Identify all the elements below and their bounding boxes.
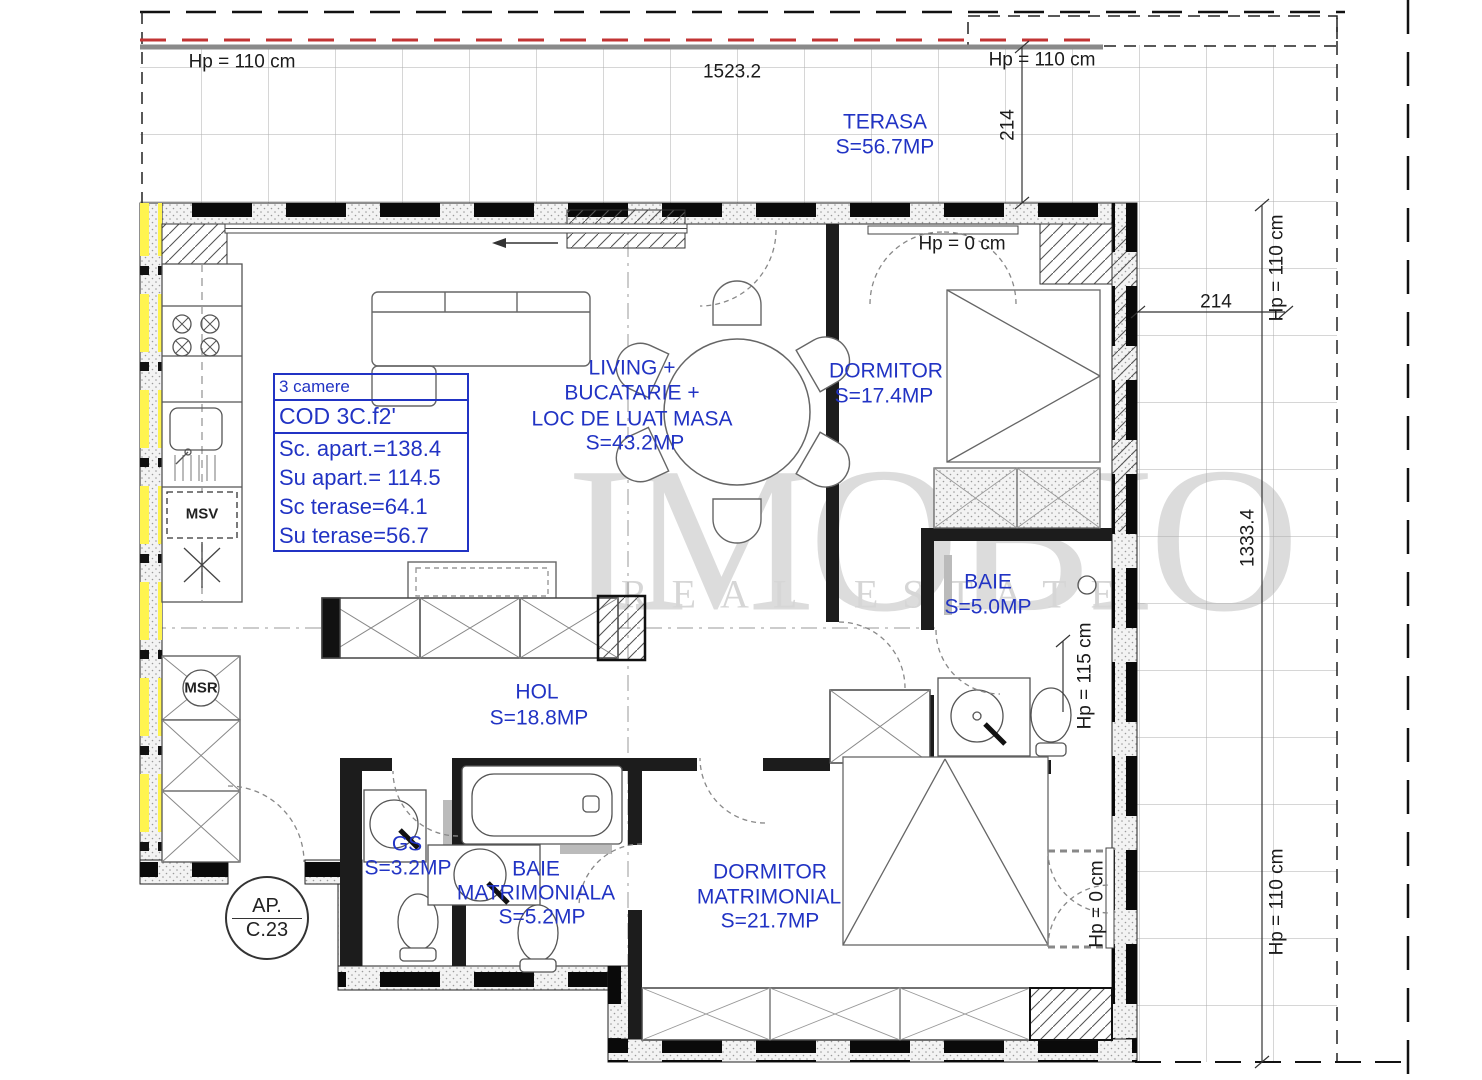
dim-1523: 1523.2 — [703, 63, 761, 82]
info-terrace-built: Sc terase=64.1 — [275, 492, 467, 521]
room-label-baie: BAIE — [964, 572, 1012, 593]
bed-dormitor — [934, 290, 1100, 528]
apartment-number-badge: AP. C.23 — [225, 876, 309, 960]
dim-hp110-right-upper: Hp = 110 cm — [1268, 215, 1287, 322]
badge-c23: C.23 — [232, 918, 302, 942]
dim-hp0-bottom: Hp = 0 cm — [1088, 860, 1107, 947]
room-area-baie: S=5.0MP — [945, 597, 1032, 618]
room-label-dorm-matr-2: MATRIMONIAL — [697, 887, 841, 908]
dim-214-right: 214 — [1200, 293, 1232, 312]
kitchen-counter — [162, 264, 242, 602]
hallway-wardrobe — [322, 596, 645, 660]
tv-cabinet — [408, 562, 556, 602]
room-label-baie-matr-1: BAIE — [512, 859, 560, 880]
floor-plan: IMOBIO REAL ESTATE — [0, 0, 1482, 1080]
dim-1333: 1333.4 — [1239, 509, 1258, 567]
closet-left — [162, 720, 240, 862]
room-label-terasa: TERASA — [843, 112, 927, 133]
room-area-hol: S=18.8MP — [490, 708, 589, 729]
room-label-living-3: LOC DE LUAT MASA — [531, 409, 732, 430]
dim-214-top: 214 — [999, 109, 1018, 141]
dim-hp110-top-left: Hp = 110 cm — [189, 53, 296, 72]
info-terrace-usable: Su terase=56.7 — [275, 521, 467, 550]
room-label-dorm-matr-1: DORMITOR — [713, 862, 827, 883]
msr-label: MSR — [184, 681, 217, 696]
north-arrow — [492, 238, 558, 248]
dim-hp0-dormitor: Hp = 0 cm — [918, 235, 1005, 254]
dim-hp110-top-right: Hp = 110 cm — [989, 51, 1096, 70]
info-built-area: Sc. apart.=138.4 — [275, 434, 467, 463]
info-rooms-count: 3 camere — [275, 375, 467, 401]
dim-hp115: Hp = 115 cm — [1076, 623, 1095, 730]
room-label-living-1: LIVING + — [589, 358, 676, 379]
badge-ap: AP. — [232, 895, 302, 918]
room-area-gs: S=3.2MP — [365, 858, 452, 879]
bathroom-baie — [938, 555, 1096, 756]
closet-hol — [830, 690, 930, 763]
wardrobe-bottom — [642, 988, 1112, 1040]
room-label-living-2: BUCATARIE + — [564, 383, 699, 404]
dim-hp110-right-lower: Hp = 110 cm — [1268, 849, 1287, 956]
room-area-baie-matr: S=5.2MP — [499, 907, 586, 928]
room-label-hol: HOL — [515, 682, 558, 703]
room-area-dormitor: S=17.4MP — [835, 386, 934, 407]
room-label-dormitor: DORMITOR — [829, 361, 943, 382]
room-area-living: S=43.2MP — [586, 433, 685, 454]
msv-label: MSV — [186, 507, 219, 522]
room-label-baie-matr-2: MATRIMONIALA — [457, 883, 615, 904]
yellow-highlight-wall — [140, 203, 162, 884]
info-code: COD 3C.f2' — [275, 401, 467, 434]
room-area-dorm-matr: S=21.7MP — [721, 911, 820, 932]
room-label-gs: GS — [392, 834, 422, 855]
info-usable-area: Su apart.= 114.5 — [275, 463, 467, 492]
apartment-info-box: 3 camere COD 3C.f2' Sc. apart.=138.4 Su … — [273, 373, 469, 552]
room-area-terasa: S=56.7MP — [836, 137, 935, 158]
